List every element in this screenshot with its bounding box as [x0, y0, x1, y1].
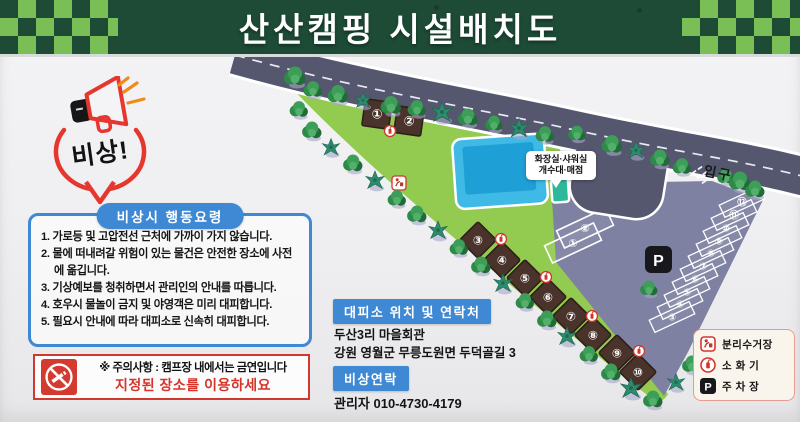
svg-text:①: ①	[371, 107, 382, 122]
shelter-badge: 대피소 위치 및 연락처	[333, 299, 491, 324]
fire-extinguisher-marker	[634, 346, 645, 357]
parking-badge: P	[645, 246, 672, 273]
parking-icon: P	[700, 378, 716, 394]
svg-text:⑦: ⑦	[566, 309, 576, 323]
checker-pattern-left	[0, 0, 118, 54]
notice-line2: 지정된 장소를 이용하세요	[84, 375, 302, 395]
page-title: 산산캠핑 시설배치도	[239, 3, 561, 51]
legend-row-extinguisher: 소 화 기	[700, 357, 788, 373]
recycle-station-icon	[700, 336, 716, 352]
checker-pattern-right	[682, 0, 800, 54]
legend-label: 소 화 기	[722, 358, 759, 373]
guideline-item: 3. 기상예보를 청취하면서 관리인의 안내를 따릅니다.	[41, 280, 301, 297]
fire-extinguisher-marker	[541, 272, 552, 283]
svg-text:⑩: ⑩	[633, 365, 643, 379]
svg-text:⑤: ⑤	[520, 271, 530, 285]
tree-icon	[302, 122, 321, 142]
svg-text:⑥: ⑥	[543, 290, 553, 304]
tree-icon	[290, 101, 308, 120]
guideline-item: 4. 호우시 물놀이 금지 및 야영객은 미리 대피합니다.	[41, 297, 301, 314]
guidelines-list: 1. 가로등 및 고압전선 근처에 가까이 가지 않습니다. 2. 물에 떠내려…	[31, 216, 309, 335]
svg-text:P: P	[704, 381, 711, 393]
facility-bubble-line2: 개수대·매점	[528, 165, 594, 176]
palm-tree-icon	[323, 139, 340, 158]
emergency-emblem: 비상!	[30, 76, 200, 208]
legend-row-parking: P 주 차 장	[700, 378, 788, 394]
guideline-item: 2. 물에 떠내려갈 위험이 있는 물건은 안전한 장소에 사전에 옮깁니다.	[41, 246, 301, 280]
map-legend: 분리수거장 소 화 기 P 주 차 장	[693, 329, 795, 401]
svg-text:③: ③	[473, 233, 483, 247]
shelter-line1: 두산3리 마을회관	[334, 326, 516, 344]
legend-row-recycle: 분리수거장	[700, 336, 788, 352]
legend-label: 분리수거장	[722, 337, 773, 352]
signboard: ①②③④⑤⑥⑦⑧⑨⑩⑪⑫ ①②③④⑤⑥⑦⑧⑨⑩ P 입구 화장실·샤워실 개수대…	[0, 0, 800, 422]
facility-bubble: 화장실·샤워실 개수대·매점	[526, 151, 596, 180]
svg-text:⑧: ⑧	[588, 328, 598, 342]
title-banner: 산산캠핑 시설배치도	[0, 0, 800, 57]
fire-extinguisher-marker	[587, 311, 598, 322]
svg-text:②: ②	[580, 223, 589, 235]
manager-phone: 관리자 010-4730-4179	[334, 393, 462, 412]
no-smoking-notice-box: ※ 주의사항 : 캠프장 내에서는 금연입니다 지정된 장소를 이용하세요	[33, 354, 310, 400]
legend-label: 주 차 장	[722, 379, 759, 394]
parking-badge-letter: P	[653, 253, 664, 270]
notice-line1: ※ 주의사항 : 캠프장 내에서는 금연입니다	[84, 359, 302, 375]
guideline-item: 5. 필요시 안내에 따라 대피소로 신속히 대피합니다.	[41, 314, 301, 331]
facility-bubble-line1: 화장실·샤워실	[528, 154, 594, 165]
svg-text:⑨: ⑨	[612, 346, 622, 360]
fire-extinguisher-icon	[700, 357, 716, 373]
svg-text:⑫: ⑫	[737, 196, 747, 208]
tree-icon	[343, 155, 362, 175]
guideline-item: 1. 가로등 및 고압전선 근처에 가까이 가지 않습니다.	[41, 229, 301, 246]
svg-text:④: ④	[497, 253, 507, 267]
guidelines-title: 비상시 행동요령	[97, 203, 244, 229]
fire-extinguisher-marker	[385, 126, 396, 137]
palm-tree-icon	[366, 171, 384, 191]
shelter-line2: 강원 영월군 무릉도원면 두덕골길 3	[334, 344, 516, 362]
screw	[637, 8, 642, 13]
shelter-address: 두산3리 마을회관 강원 영월군 무릉도원면 두덕골길 3	[334, 326, 516, 362]
notice-text: ※ 주의사항 : 캠프장 내에서는 금연입니다 지정된 장소를 이용하세요	[84, 359, 302, 395]
emergency-contact-badge: 비상연락	[333, 366, 409, 391]
no-smoking-icon	[41, 359, 77, 395]
recycle-station-marker	[392, 176, 406, 190]
recycle-station-marker-icon	[392, 176, 406, 190]
emergency-guidelines-box: 비상시 행동요령 1. 가로등 및 고압전선 근처에 가까이 가지 않습니다. …	[28, 213, 312, 347]
fire-extinguisher-marker	[496, 234, 507, 245]
